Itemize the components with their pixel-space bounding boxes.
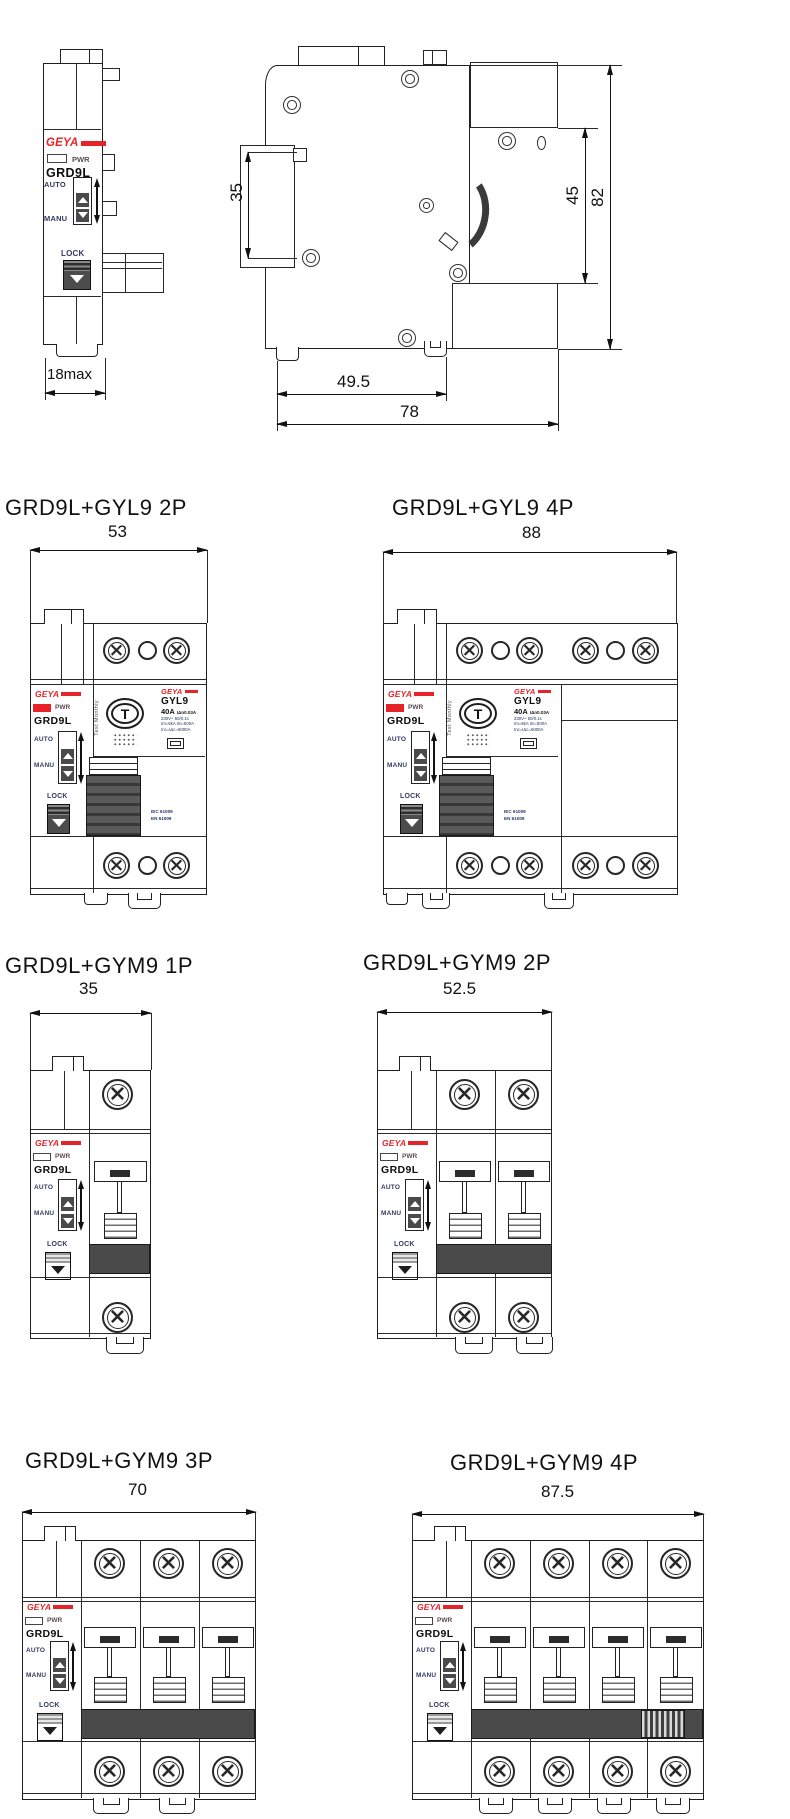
terminal-screw-icon	[94, 1548, 125, 1579]
breaker-gym9-4p: GEYA PWR GRD9L AUTO MANU LOCK	[412, 1540, 704, 1800]
mechanism-block	[449, 1213, 482, 1239]
mechanism-block	[602, 1677, 635, 1703]
dim-line	[277, 394, 446, 395]
dark-band	[89, 1244, 150, 1274]
dim-line	[610, 65, 611, 349]
bottom-clip	[422, 893, 450, 909]
rail-clip	[293, 148, 307, 162]
terminal-screw-icon	[572, 852, 599, 879]
side-clip	[102, 201, 117, 216]
pwr-label: PWR	[402, 1153, 417, 1160]
auto-label: AUTO	[387, 736, 406, 743]
pwr-label: PWR	[55, 1153, 70, 1160]
handle-stem	[615, 1648, 620, 1677]
bottom-clip	[424, 341, 447, 357]
pole-4	[647, 1541, 705, 1799]
double-arrow-icon	[96, 187, 98, 215]
brand-text: GEYA	[35, 1139, 59, 1148]
rating-label: 40A IΔn0.03A	[161, 707, 209, 716]
terminal-screw-icon	[456, 852, 483, 879]
rating-idn: IΔn0.03A	[177, 710, 196, 715]
handle-slot	[159, 1636, 179, 1643]
line	[23, 1793, 255, 1794]
mechanism-block	[153, 1677, 186, 1703]
striped-block	[641, 1710, 685, 1738]
din-tab	[397, 609, 437, 624]
toggle-up-icon	[61, 749, 74, 764]
pole-3	[199, 1541, 257, 1799]
terminal-screw-icon	[212, 1756, 243, 1787]
line	[446, 1541, 447, 1597]
line	[44, 129, 101, 130]
dim-53: 53	[108, 522, 127, 542]
terminal-screw-icon	[103, 637, 130, 664]
dim-line	[383, 552, 677, 553]
mechanism-block	[660, 1677, 693, 1703]
auto-manu-toggle	[50, 1641, 69, 1691]
side-clip	[102, 68, 120, 81]
handle-stem	[462, 1182, 467, 1213]
line	[436, 624, 437, 684]
view-gym9-1p: GRD9L+GYM9 1P 35 GEYA PWR GRD9L AUTO MAN…	[5, 945, 217, 1365]
cert-text: IEC 61009EN 61009	[151, 809, 173, 823]
cert-line: EN 61009	[151, 816, 171, 821]
brand-text: GEYA	[417, 1603, 441, 1612]
handle-stem	[497, 1648, 502, 1677]
manu-label: MANU	[387, 762, 407, 769]
pwr-label: PWR	[55, 704, 70, 711]
line	[83, 624, 84, 684]
toggle-down-icon	[76, 209, 89, 222]
lock-label: LOCK	[394, 1241, 415, 1248]
line	[103, 262, 162, 263]
spec-line: Inc=IΔc=6000A	[514, 727, 562, 733]
lock-button	[47, 804, 70, 834]
lower-pole-body	[452, 283, 558, 349]
handle-stem	[225, 1648, 230, 1677]
ext-line	[255, 1512, 256, 1540]
terminal-screw-icon	[102, 1302, 133, 1333]
ext-line	[470, 65, 622, 66]
dim-line	[412, 1514, 704, 1515]
logo-bar	[61, 1141, 81, 1145]
handle-slot	[549, 1636, 569, 1643]
lock-button	[37, 1713, 63, 1741]
pole-2	[495, 1071, 554, 1338]
terminal-hole-icon	[138, 641, 157, 660]
terminal-hole-icon	[491, 641, 510, 660]
view-gyl9-2p: GRD9L+GYL9 2P 53 GEYA PWR GRD9L AUTO MAN…	[5, 490, 237, 915]
line	[76, 296, 77, 344]
brand-text: GEYA	[46, 138, 79, 150]
dim-52-5: 52.5	[443, 979, 476, 999]
terminal-screw-icon	[153, 1756, 184, 1787]
manu-label: MANU	[34, 762, 54, 769]
line	[61, 624, 62, 684]
toggle-down-icon	[61, 1214, 74, 1229]
pwr-label: PWR	[47, 1617, 62, 1624]
model-label: GRD9L	[34, 1164, 72, 1176]
dim-line	[45, 393, 105, 394]
line	[103, 268, 162, 269]
cert-line: IEC 61009	[151, 809, 173, 814]
rcd-model-label: GYL9	[514, 696, 562, 707]
ext-line	[412, 1514, 413, 1540]
top-tab	[298, 46, 385, 65]
rivet-icon	[283, 96, 301, 114]
rcd-model-label: GYL9	[161, 696, 209, 707]
lock-button	[400, 804, 423, 834]
bottom-clip	[544, 893, 574, 909]
handle-slot	[455, 1170, 475, 1177]
terminal-screw-icon	[543, 1756, 574, 1787]
auto-manu-toggle	[411, 731, 430, 784]
pole-2	[530, 1541, 589, 1799]
model-label: GRD9L	[381, 1164, 419, 1176]
logo-bar	[185, 690, 198, 693]
dim-line	[30, 1013, 151, 1014]
geya-logo: GEYA	[382, 1139, 428, 1148]
dark-band	[436, 1244, 552, 1274]
auto-label: AUTO	[381, 1184, 400, 1191]
test-monthly-label: Test Monthly	[94, 700, 100, 736]
dim-35: 35	[227, 183, 247, 202]
brand-text: GEYA	[388, 690, 412, 699]
band-line	[378, 1277, 551, 1278]
rivet-icon	[401, 70, 419, 88]
line	[414, 624, 415, 684]
handle-slot	[608, 1636, 628, 1643]
view-gym9-2p: GRD9L+GYM9 2P 52.5 GEYA PWR GRD9L AUTO M…	[315, 945, 581, 1365]
circuit-symbol-icon	[113, 733, 137, 747]
model-label: GRD9L	[34, 715, 72, 727]
auto-label: AUTO	[34, 736, 53, 743]
rivet-icon	[449, 264, 467, 282]
band-line	[23, 1741, 255, 1742]
brand-text: GEYA	[35, 690, 59, 699]
pwr-label: PWR	[72, 155, 90, 164]
pwr-led	[386, 704, 404, 712]
manu-label: MANU	[26, 1672, 46, 1679]
lock-button	[392, 1252, 418, 1280]
lock-label: LOCK	[39, 1702, 60, 1709]
pole-1	[81, 1541, 140, 1799]
logo-bar	[408, 1141, 428, 1145]
line	[31, 1333, 150, 1334]
terminal-hole-icon	[491, 856, 510, 875]
ext-line	[30, 1013, 31, 1070]
handle-stem	[521, 1182, 526, 1213]
lock-label: LOCK	[400, 793, 421, 800]
handle-stem	[673, 1648, 678, 1677]
geya-logo: GEYA	[388, 690, 434, 699]
view-side-profile: 35 45 82 49.5 78	[225, 20, 637, 440]
line	[76, 64, 77, 129]
dim-line	[277, 424, 558, 425]
geya-logo: GEYA	[35, 690, 81, 699]
double-arrow-icon	[72, 1651, 74, 1682]
toggle-down-icon	[414, 766, 427, 781]
terminal-screw-icon	[153, 1548, 184, 1579]
lock-label: LOCK	[47, 793, 68, 800]
pole-1	[436, 1071, 495, 1338]
manu-label: MANU	[381, 1210, 401, 1217]
handle-stem	[556, 1648, 561, 1677]
double-arrow-icon	[80, 1189, 82, 1222]
top-clip	[423, 50, 447, 65]
rating-amps: 40A	[161, 707, 175, 716]
din-tab	[399, 1056, 431, 1071]
test-letter: T	[121, 706, 130, 722]
terminal-screw-icon	[163, 852, 190, 879]
band-line	[31, 836, 206, 837]
line	[44, 296, 101, 297]
view-title: GRD9L+GYM9 3P	[25, 1448, 213, 1474]
bottom-foot	[56, 344, 98, 357]
band-line	[384, 684, 677, 685]
toggle-up-icon	[53, 1658, 66, 1672]
ext-line	[703, 1514, 704, 1540]
lock-label: LOCK	[429, 1702, 450, 1709]
terminal-screw-icon	[456, 637, 483, 664]
geya-logo: GEYA	[27, 1603, 73, 1612]
toggle-up-icon	[443, 1658, 456, 1672]
pwr-led	[33, 704, 51, 712]
view-gym9-3p: GRD9L+GYM9 3P 70 GEYA PWR GRD9L AUTO MAN…	[20, 1440, 276, 1819]
ext-line	[558, 349, 559, 431]
view-front-profile: GEYA PWR GRD9L AUTO MANU LOCK 18max	[30, 8, 185, 408]
dim-line	[377, 1012, 552, 1013]
spec-line: Inc=IΔc=6000A	[161, 727, 209, 733]
dim-line	[30, 550, 207, 551]
ext-line	[383, 552, 384, 623]
terminal-screw-icon	[449, 1302, 480, 1333]
terminal-hole-icon	[606, 856, 625, 875]
terminal-screw-icon	[660, 1548, 691, 1579]
manu-label: MANU	[34, 1210, 54, 1217]
pwr-led	[415, 1617, 433, 1625]
double-arrow-icon	[427, 1189, 429, 1222]
dim-line	[248, 152, 249, 258]
double-arrow-icon	[433, 741, 435, 775]
toggle-up-icon	[76, 193, 89, 206]
dim-18max: 18max	[47, 366, 92, 383]
terminal-screw-icon	[572, 637, 599, 664]
circuit-symbol-icon	[466, 733, 490, 747]
bottom-foot	[276, 347, 299, 361]
technical-drawing-canvas: GEYA PWR GRD9L AUTO MANU LOCK 18max	[0, 0, 790, 1819]
ext-line	[30, 550, 31, 623]
view-title: GRD9L+GYM9 2P	[363, 950, 551, 976]
dim-88: 88	[522, 523, 541, 543]
side-clip	[102, 154, 115, 171]
bottom-foot	[386, 893, 408, 905]
line	[432, 51, 433, 64]
line	[31, 888, 206, 889]
line	[125, 254, 126, 292]
view-title: GRD9L+GYL9 2P	[5, 495, 187, 521]
logo-bar	[53, 1605, 73, 1609]
din-tab	[434, 1526, 466, 1541]
rail-lock-attachment	[102, 253, 164, 293]
terminal-screw-icon	[632, 852, 659, 879]
logo-bar	[443, 1605, 463, 1609]
bottom-clip	[479, 1798, 513, 1814]
dim-82: 82	[588, 188, 608, 207]
dim-line	[22, 1512, 256, 1513]
ext-line	[551, 1012, 552, 1070]
bottom-foot	[84, 893, 108, 905]
dark-band	[81, 1709, 255, 1739]
band-line	[384, 836, 677, 837]
double-insulation-icon	[167, 738, 184, 749]
rating-amps: 40A	[514, 707, 528, 716]
breaker-handle	[86, 775, 141, 836]
bottom-clip	[656, 1798, 690, 1814]
handle-stem	[107, 1648, 112, 1677]
ext-line	[22, 1512, 23, 1540]
terminal-screw-icon	[163, 637, 190, 664]
band-line	[413, 1741, 703, 1742]
line	[384, 888, 677, 889]
dim-35: 35	[79, 979, 98, 999]
handle-slot	[666, 1636, 686, 1643]
model-label: GRD9L	[387, 715, 425, 727]
pwr-led	[380, 1153, 398, 1161]
toggle-down-icon	[53, 1674, 66, 1688]
terminal-screw-icon	[516, 852, 543, 879]
rating-idn: IΔn0.03A	[530, 710, 549, 715]
view-gym9-4p: GRD9L+GYM9 4P 87.5 GEYA PWR GRD9L AUTO M…	[405, 1440, 721, 1819]
din-tab	[44, 609, 84, 624]
ext-line	[248, 258, 297, 259]
ext-line	[558, 283, 598, 284]
cert-line: IEC 61009	[504, 809, 526, 814]
upper-pole-body	[470, 62, 558, 128]
terminal-screw-icon	[484, 1548, 515, 1579]
din-tab	[52, 1056, 84, 1071]
auto-label: AUTO	[34, 1184, 53, 1191]
ext-line	[248, 152, 297, 153]
handle-stem	[117, 1182, 122, 1213]
line	[561, 720, 677, 721]
bottom-clip	[128, 893, 161, 909]
band-line	[31, 1277, 150, 1278]
bottom-clip	[93, 1798, 129, 1814]
logo-bar	[538, 690, 551, 693]
bottom-clip	[538, 1798, 572, 1814]
geya-logo: GEYA	[417, 1603, 463, 1612]
breaker-gym9-2p: GEYA PWR GRD9L AUTO MANU LOCK	[377, 1070, 552, 1339]
logo-bar	[414, 692, 434, 696]
manu-label: MANU	[416, 1672, 436, 1679]
lock-button	[427, 1713, 453, 1741]
breaker-gym9-3p: GEYA PWR GRD9L AUTO MANU LOCK	[22, 1540, 256, 1800]
pole-2	[140, 1541, 199, 1799]
terminal-screw-icon	[602, 1756, 633, 1787]
manu-label: MANU	[44, 214, 67, 223]
band-line	[31, 684, 206, 685]
view-title: GRD9L+GYM9 4P	[450, 1450, 638, 1476]
brand-text: GEYA	[161, 688, 183, 696]
module-body: GEYA PWR GRD9L AUTO MANU LOCK	[43, 63, 103, 345]
auto-manu-toggle	[73, 177, 92, 225]
line	[411, 1071, 412, 1129]
line	[56, 1541, 57, 1597]
terminal-screw-icon	[516, 637, 543, 664]
mechanism-block	[508, 1213, 541, 1239]
terminal-screw-icon	[543, 1548, 574, 1579]
model-label: GRD9L	[416, 1628, 454, 1640]
mechanism-block	[543, 1677, 576, 1703]
ext-line	[676, 552, 677, 623]
toggle-up-icon	[414, 749, 427, 764]
breaker-gym9-1p: GEYA PWR GRD9L AUTO MANU LOCK	[30, 1070, 151, 1339]
terminal-screw-icon	[102, 1079, 133, 1110]
dim-line	[585, 128, 586, 283]
handle-slot	[490, 1636, 510, 1643]
model-label: GRD9L	[26, 1628, 64, 1640]
mechanism-block	[94, 1677, 127, 1703]
terminal-screw-icon	[632, 637, 659, 664]
lock-label: LOCK	[61, 249, 84, 258]
double-arrow-icon	[462, 1651, 464, 1682]
line	[384, 679, 677, 680]
bottom-clip	[159, 1798, 195, 1814]
handle-slot	[514, 1170, 534, 1177]
rating-label: 40A IΔn0.03A	[514, 707, 562, 716]
toggle-up-icon	[61, 1197, 74, 1212]
handle-slot	[218, 1636, 238, 1643]
dim-87-5: 87.5	[541, 1482, 574, 1502]
handle-slot	[100, 1636, 120, 1643]
gyl9-label: GEYA GYL9 40A IΔn0.03A 230V~ 50/0.1s Im=…	[514, 688, 562, 732]
terminal-screw-icon	[508, 1079, 539, 1110]
geya-logo: GEYA	[161, 688, 209, 696]
line	[413, 1793, 703, 1794]
rivet-icon	[302, 249, 320, 267]
ext-line	[377, 1012, 378, 1070]
din-tab	[44, 1526, 76, 1541]
gyl9-label: GEYA GYL9 40A IΔn0.03A 230V~ 50/0.1s Im=…	[161, 688, 209, 732]
cert-text: IEC 61009EN 61009	[504, 809, 526, 823]
terminal-screw-icon	[212, 1548, 243, 1579]
mechanism-block	[484, 1677, 517, 1703]
toggle-down-icon	[408, 1214, 421, 1229]
terminal-hole-icon	[138, 856, 157, 875]
auto-label: AUTO	[44, 180, 66, 189]
terminal-screw-icon	[508, 1302, 539, 1333]
lock-label: LOCK	[47, 1241, 68, 1248]
pwr-led	[33, 1153, 51, 1161]
test-button: T	[459, 698, 497, 729]
brand-text: GEYA	[27, 1603, 51, 1612]
bottom-clip	[597, 1798, 631, 1814]
dim-78: 78	[400, 402, 419, 422]
toggle-up-icon	[408, 1197, 421, 1212]
geya-logo: GEYA	[514, 688, 562, 696]
edge-nub	[537, 136, 546, 150]
auto-manu-toggle	[405, 1179, 424, 1231]
bottom-clip	[106, 1337, 144, 1354]
toggle-down-icon	[443, 1674, 456, 1688]
auto-label: AUTO	[26, 1647, 45, 1654]
bottom-clip	[455, 1337, 493, 1354]
auto-manu-toggle	[58, 1179, 77, 1231]
ext-line	[151, 1013, 152, 1070]
dim-49-5: 49.5	[337, 372, 370, 392]
view-gyl9-4p: GRD9L+GYL9 4P 88 GEYA PWR GRD9L AUTO MAN…	[330, 490, 692, 915]
